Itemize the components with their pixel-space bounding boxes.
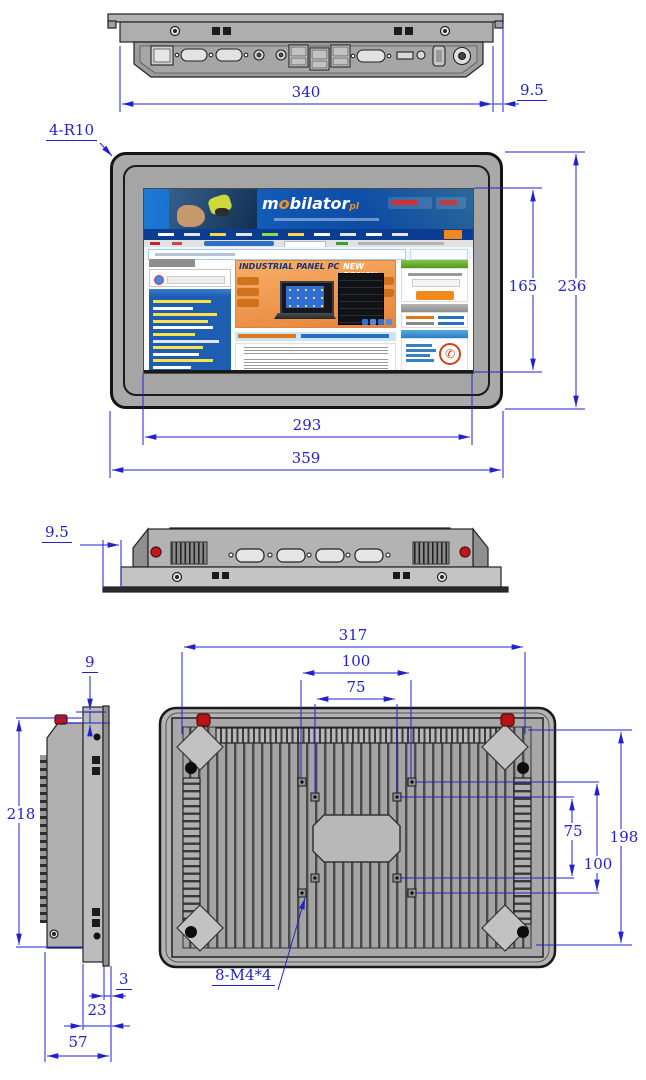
categories-header [149,289,231,297]
sidebar-menu[interactable] [149,297,231,373]
vga-port-c [316,549,344,562]
article-headline[interactable] [235,332,396,341]
display-screen: mobilatorpl [143,188,474,374]
contact-box: ✆ [401,338,468,373]
power-button[interactable] [151,547,161,557]
front-lip-edge [108,14,503,22]
vga-port-b [277,549,305,562]
serial-port [357,50,385,62]
power-button-2[interactable] [460,547,470,557]
bezel-lip-profile [103,706,109,966]
bezel-lip-edge [103,587,508,592]
dim-cutout-height: 198 [608,829,641,846]
left-fin-strip [183,778,200,924]
rear-power-button-left[interactable] [197,714,210,726]
nav-bar[interactable] [144,229,473,240]
central-plate [313,815,400,862]
sidebar-header [149,259,195,267]
dim-display-height: 165 [507,278,540,295]
dim-top-flange: 9.5 [517,82,547,101]
sim-slot [397,52,413,59]
vga-port-2 [216,49,242,61]
dim-cutout-width: 317 [339,627,368,644]
dim-display-width: 293 [293,417,322,434]
dim-vesa75-width: 75 [346,679,365,696]
article-body [235,343,396,373]
vent-grill-left [171,542,207,564]
newsletter-button[interactable] [416,291,454,300]
mount-hole-bl [185,926,197,938]
partner-logo-2 [436,197,466,209]
rear-power-button-right[interactable] [501,714,514,726]
vga-port-1 [181,49,207,61]
dim-top-width: 340 [292,84,321,101]
laptop-image [280,281,334,317]
side-body [47,723,83,948]
newsletter-box [401,268,468,302]
vga-port-a [236,549,264,562]
rear-view [160,708,555,967]
phone-icon[interactable]: ✆ [439,343,461,365]
newsletter-header [401,260,468,268]
dim-body-height: 218 [5,806,38,823]
dim-flange-overhang: 9 [82,654,98,673]
mount-hole-br [517,926,529,938]
login-box[interactable] [401,312,468,328]
dim-corner-radius: 4-R10 [46,122,97,141]
header-photo [169,189,257,229]
dim-total-depth: 57 [68,1034,87,1051]
dim-front-width: 359 [292,450,321,467]
vga-port-d [355,549,383,562]
dim-front-lip: 3 [116,971,132,990]
right-fin-strip [514,778,531,924]
bottom-edge-view [0,495,646,605]
dim-vesa100-height: 100 [582,856,615,873]
technical-drawing-panel-pc: mobilatorpl [0,0,646,1080]
dim-front-height: 236 [556,278,589,295]
vent-grill-right [413,542,449,564]
dim-mount-screws: 8-M4*4 [212,967,275,986]
mount-hole-tr [517,762,529,774]
server-cabinet-image [338,273,384,325]
top-fin-strip [216,728,504,743]
dim-vesa75-height: 75 [561,823,584,840]
dim-vesa100-width: 100 [342,653,371,670]
mount-hole-tl [185,762,197,774]
login-header [401,304,468,312]
reset-hole [417,51,425,59]
side-power-button[interactable] [55,715,67,724]
sidebar-search-widget[interactable] [149,269,231,287]
contact-header [401,330,468,338]
banner-title: INDUSTRIAL PANEL PC [239,262,339,271]
nav-highlight-tab[interactable] [444,230,462,239]
dim-rear-depth: 23 [87,1002,106,1019]
promo-banner[interactable]: INDUSTRIAL PANEL PC NEW DESIGN [235,260,396,328]
partner-logo-1 [388,197,432,209]
info-strip [144,240,473,247]
top-view [0,0,646,130]
dim-side-flange: 9.5 [42,524,72,543]
side-profile-view [40,706,109,966]
